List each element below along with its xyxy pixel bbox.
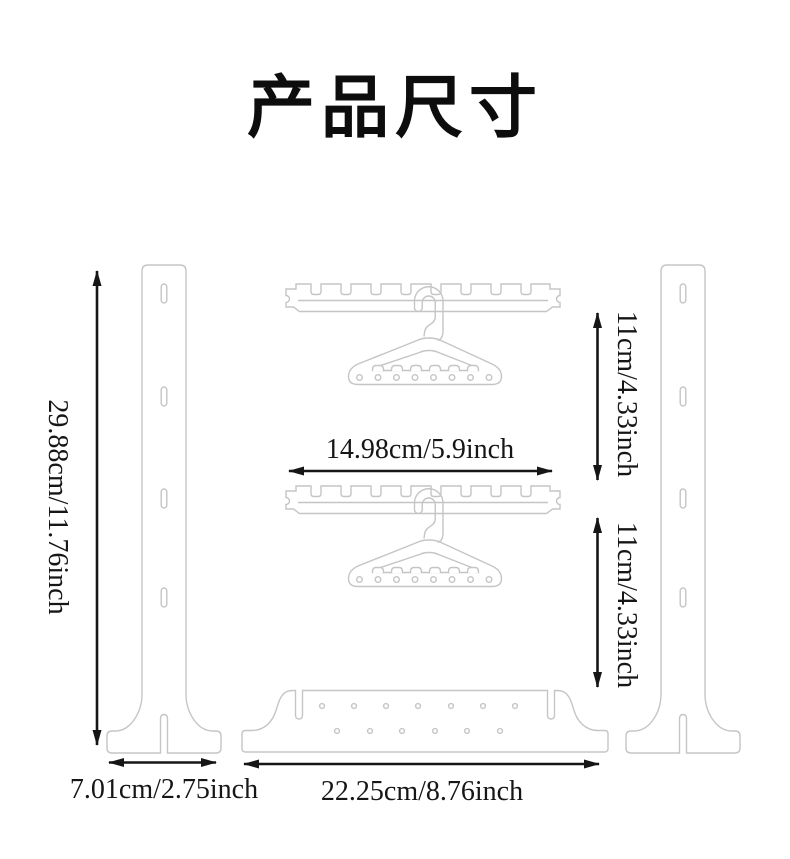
dim-label-bar-length: 14.98cm/5.9inch [270, 434, 570, 466]
dim-label-foot-width: 7.01cm/2.75inch [44, 774, 284, 806]
lower-hanger-outline [349, 489, 502, 587]
left-post-outline [107, 265, 221, 753]
dim-label-lower-gap: 11cm/4.33inch [610, 495, 642, 715]
dim-label-post-height: 29.88cm/11.76inch [41, 342, 73, 672]
dim-label-base-length: 22.25cm/8.76inch [272, 776, 572, 808]
dim-label-upper-gap: 11cm/4.33inch [610, 284, 642, 504]
base-plate-outline [242, 691, 608, 753]
product-dimensions-page: 产品尺寸 [0, 0, 790, 859]
right-post-outline [626, 265, 740, 753]
upper-hanger-outline [349, 287, 502, 385]
product-dimensions-diagram [0, 0, 790, 859]
